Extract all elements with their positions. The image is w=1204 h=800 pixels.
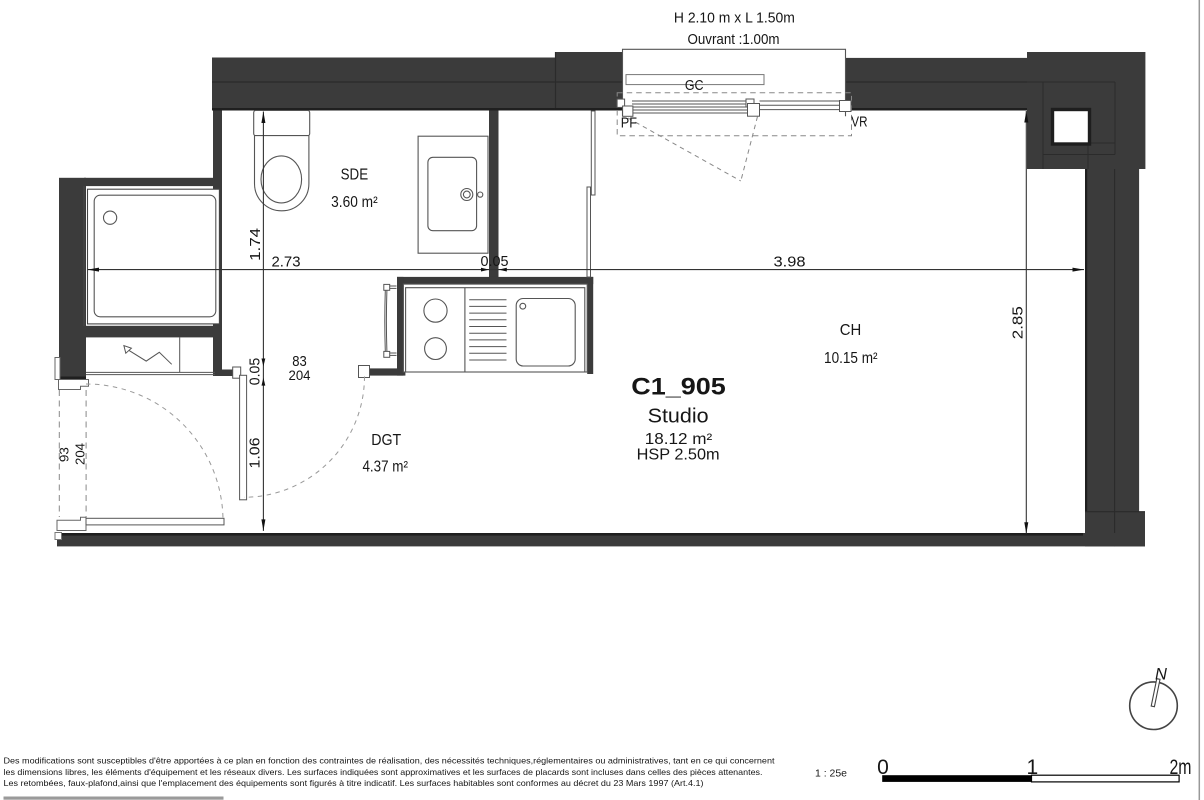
svg-text:0.05: 0.05 [248, 358, 264, 386]
svg-text:0: 0 [877, 756, 889, 779]
svg-text:204: 204 [73, 443, 87, 465]
svg-text:18.12 m²: 18.12 m² [645, 431, 713, 448]
svg-text:Les retombées, faux-plafond,ai: Les retombées, faux-plafond,ainsi que l'… [4, 778, 704, 788]
svg-text:1: 1 [1026, 756, 1038, 779]
svg-text:Ouvrant :1.00m: Ouvrant :1.00m [688, 31, 780, 48]
svg-text:0.05: 0.05 [481, 254, 509, 270]
svg-text:C1_905: C1_905 [631, 374, 726, 401]
svg-text:HSP 2.50m: HSP 2.50m [637, 447, 720, 464]
svg-text:1.74: 1.74 [248, 228, 264, 261]
svg-text:les dimensions libres, les élé: les dimensions libres, les éléments d'éq… [4, 767, 763, 777]
svg-text:93: 93 [58, 447, 72, 462]
svg-text:Des modifications sont suscept: Des modifications sont susceptibles d'êt… [4, 756, 776, 766]
svg-text:1 : 25e: 1 : 25e [815, 768, 847, 780]
svg-text:N: N [1155, 666, 1167, 684]
svg-text:2.85: 2.85 [1009, 306, 1026, 339]
svg-text:10.15 m²: 10.15 m² [824, 350, 878, 367]
svg-text:CH: CH [840, 322, 862, 339]
svg-text:1.06: 1.06 [248, 438, 264, 469]
svg-text:SDE: SDE [341, 167, 369, 184]
svg-text:PF: PF [621, 115, 637, 131]
svg-text:2.73: 2.73 [272, 255, 301, 271]
svg-text:H 2.10 m x L 1.50m: H 2.10 m x L 1.50m [674, 9, 795, 26]
svg-text:GC: GC [685, 77, 704, 94]
svg-text:Studio: Studio [648, 405, 709, 427]
svg-text:3.60 m²: 3.60 m² [331, 194, 378, 211]
svg-text:4.37 m²: 4.37 m² [362, 459, 408, 476]
svg-text:3.98: 3.98 [774, 255, 806, 271]
svg-text:204: 204 [289, 368, 311, 384]
svg-text:DGT: DGT [371, 432, 401, 449]
svg-text:2m: 2m [1170, 756, 1192, 779]
svg-text:VR: VR [851, 115, 867, 131]
